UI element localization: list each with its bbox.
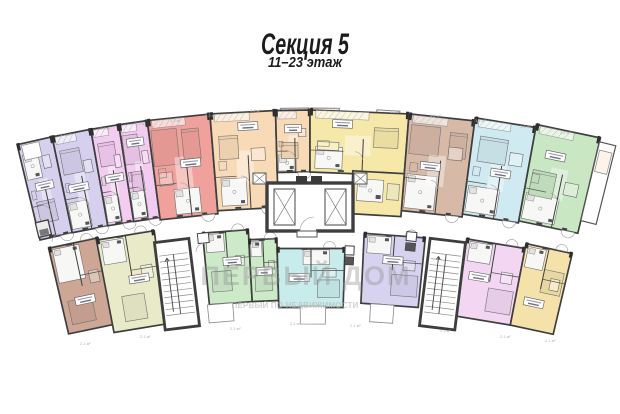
svg-text:3.2 м²: 3.2 м²: [390, 109, 401, 114]
svg-text:3.2 м²: 3.2 м²: [330, 106, 341, 111]
svg-text:2.1 м²: 2.1 м²: [230, 326, 241, 331]
svg-text:2.1 м²: 2.1 м²: [290, 321, 301, 326]
svg-text:3.2 м²: 3.2 м²: [170, 118, 181, 123]
svg-text:3.2 м²: 3.2 м²: [135, 121, 146, 126]
svg-text:2.1 м²: 2.1 м²: [140, 334, 151, 339]
svg-text:ПЕРВЫЙ ПО НЕДВИЖИМОСТИ: ПЕРВЫЙ ПО НЕДВИЖИМОСТИ: [231, 301, 358, 310]
svg-text:ПЕРВЫЙ ДОМ: ПЕРВЫЙ ДОМ: [201, 260, 412, 291]
svg-text:2.1 м²: 2.1 м²: [500, 334, 511, 339]
svg-text:3.2 м²: 3.2 м²: [100, 126, 111, 131]
svg-text:3.2 м²: 3.2 м²: [520, 124, 531, 129]
svg-text:3.2 м²: 3.2 м²: [430, 113, 441, 118]
svg-text:3.2 м²: 3.2 м²: [205, 113, 216, 118]
svg-text:11–23 этаж: 11–23 этаж: [268, 54, 343, 71]
svg-text:3.2 м²: 3.2 м²: [475, 118, 486, 123]
svg-text:2.1 м²: 2.1 м²: [80, 341, 91, 346]
svg-text:3.2 м²: 3.2 м²: [250, 108, 261, 113]
svg-text:2.1 м²: 2.1 м²: [545, 338, 556, 343]
svg-text:2.1 м²: 2.1 м²: [440, 328, 451, 333]
svg-text:3.2 м²: 3.2 м²: [60, 132, 71, 137]
svg-text:2.1 м²: 2.1 м²: [350, 323, 361, 328]
svg-text:3.2 м²: 3.2 м²: [560, 130, 571, 135]
